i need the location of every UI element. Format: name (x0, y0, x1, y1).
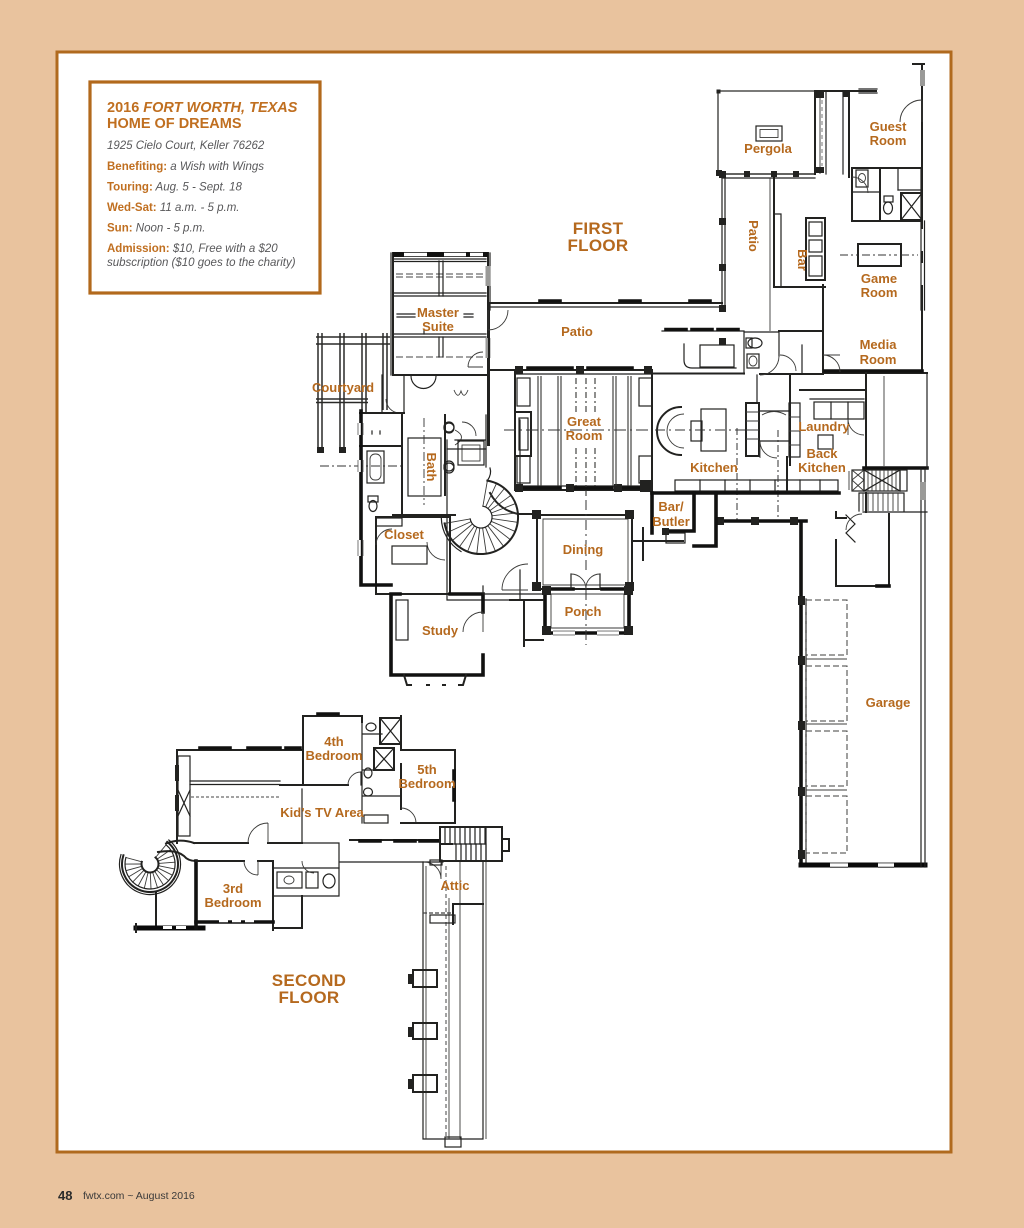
svg-text:Bar: Bar (795, 249, 810, 271)
svg-text:Room: Room (870, 133, 907, 148)
svg-text:Bedroom: Bedroom (398, 776, 455, 791)
svg-text:FLOOR: FLOOR (568, 236, 629, 255)
svg-text:HOME OF DREAMS: HOME OF DREAMS (107, 116, 242, 132)
svg-text:Butler: Butler (652, 514, 690, 529)
svg-text:1925 Cielo Court, Keller 76262: 1925 Cielo Court, Keller 76262 (107, 140, 265, 152)
svg-text:2016 FORT WORTH, TEXAS: 2016 FORT WORTH, TEXAS (107, 100, 298, 116)
svg-text:Room: Room (860, 352, 897, 367)
svg-text:Benefiting: a Wish with Wings: Benefiting: a Wish with Wings (107, 161, 264, 173)
svg-text:Room: Room (861, 285, 898, 300)
svg-text:Kid’s TV Area: Kid’s TV Area (280, 805, 364, 820)
svg-text:Suite: Suite (422, 319, 454, 334)
svg-text:48: 48 (58, 1188, 72, 1203)
svg-text:3rd: 3rd (223, 881, 243, 896)
svg-text:Game: Game (861, 271, 897, 286)
svg-text:Attic: Attic (441, 878, 470, 893)
svg-text:Back: Back (806, 446, 838, 461)
svg-text:Pergola: Pergola (744, 141, 792, 156)
svg-text:subscription ($10 goes to the: subscription ($10 goes to the charity) (107, 257, 296, 269)
svg-text:Courtyard: Courtyard (312, 380, 374, 395)
svg-text:Study: Study (422, 623, 459, 638)
svg-text:FLOOR: FLOOR (279, 988, 340, 1007)
svg-text:Bedroom: Bedroom (204, 895, 261, 910)
svg-text:Bar/: Bar/ (658, 499, 684, 514)
svg-text:Kitchen: Kitchen (690, 460, 738, 475)
svg-text:Touring: Aug. 5 - Sept. 18: Touring: Aug. 5 - Sept. 18 (107, 182, 242, 194)
svg-text:Sun: Noon - 5 p.m.: Sun: Noon - 5 p.m. (107, 223, 205, 235)
svg-text:Kitchen: Kitchen (798, 460, 846, 475)
svg-text:Room: Room (566, 428, 603, 443)
svg-text:Porch: Porch (565, 604, 602, 619)
svg-text:Master: Master (417, 305, 459, 320)
svg-text:Closet: Closet (384, 527, 424, 542)
svg-text:Patio: Patio (561, 324, 593, 339)
svg-text:Garage: Garage (866, 695, 911, 710)
svg-text:Dining: Dining (563, 542, 603, 557)
svg-text:Patio: Patio (746, 220, 761, 252)
svg-text:Bath: Bath (424, 453, 439, 482)
svg-text:Media: Media (860, 337, 898, 352)
svg-text:Laundry: Laundry (798, 419, 850, 434)
svg-text:Bedroom: Bedroom (305, 748, 362, 763)
svg-text:4th: 4th (324, 734, 344, 749)
svg-text:Admission: $10, Free with a $2: Admission: $10, Free with a $20 (107, 243, 278, 255)
svg-text:5th: 5th (417, 762, 437, 777)
svg-text:Wed-Sat: 11 a.m. - 5 p.m.: Wed-Sat: 11 a.m. - 5 p.m. (107, 202, 240, 214)
svg-text:fwtx.com ~ August 2016: fwtx.com ~ August 2016 (83, 1190, 195, 1202)
svg-text:Great: Great (567, 414, 602, 429)
svg-text:Guest: Guest (870, 119, 908, 134)
